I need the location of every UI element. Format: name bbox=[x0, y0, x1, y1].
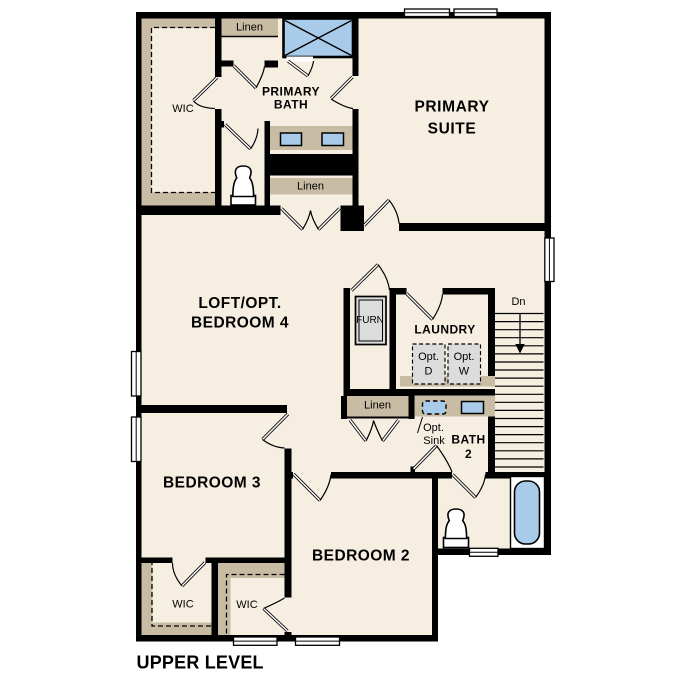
svg-text:Linen: Linen bbox=[236, 22, 263, 34]
svg-text:W: W bbox=[459, 366, 470, 378]
svg-text:PRIMARY: PRIMARY bbox=[262, 85, 320, 99]
svg-text:2: 2 bbox=[465, 447, 472, 461]
svg-text:Opt.: Opt. bbox=[454, 351, 475, 363]
svg-text:PRIMARY: PRIMARY bbox=[414, 99, 489, 116]
svg-text:BEDROOM 3: BEDROOM 3 bbox=[163, 475, 261, 492]
svg-text:Opt.: Opt. bbox=[423, 422, 444, 434]
svg-text:SUITE: SUITE bbox=[428, 121, 477, 138]
svg-text:WIC: WIC bbox=[172, 599, 193, 611]
svg-text:FURN: FURN bbox=[356, 315, 384, 326]
svg-text:WIC: WIC bbox=[236, 599, 257, 611]
svg-text:LAUNDRY: LAUNDRY bbox=[414, 323, 475, 337]
svg-text:LOFT/OPT.: LOFT/OPT. bbox=[198, 295, 281, 312]
svg-text:Sink: Sink bbox=[423, 435, 445, 447]
svg-text:UPPER LEVEL: UPPER LEVEL bbox=[137, 653, 264, 673]
svg-text:BATH: BATH bbox=[451, 433, 485, 447]
svg-text:BEDROOM 4: BEDROOM 4 bbox=[191, 315, 289, 332]
svg-text:Linen: Linen bbox=[364, 400, 391, 412]
svg-text:D: D bbox=[425, 366, 433, 378]
svg-text:BATH: BATH bbox=[274, 98, 308, 112]
svg-text:Opt.: Opt. bbox=[418, 351, 439, 363]
svg-text:WIC: WIC bbox=[172, 103, 193, 115]
svg-text:Dn: Dn bbox=[511, 296, 525, 308]
svg-text:BEDROOM 2: BEDROOM 2 bbox=[312, 548, 410, 565]
svg-text:Linen: Linen bbox=[297, 181, 324, 193]
